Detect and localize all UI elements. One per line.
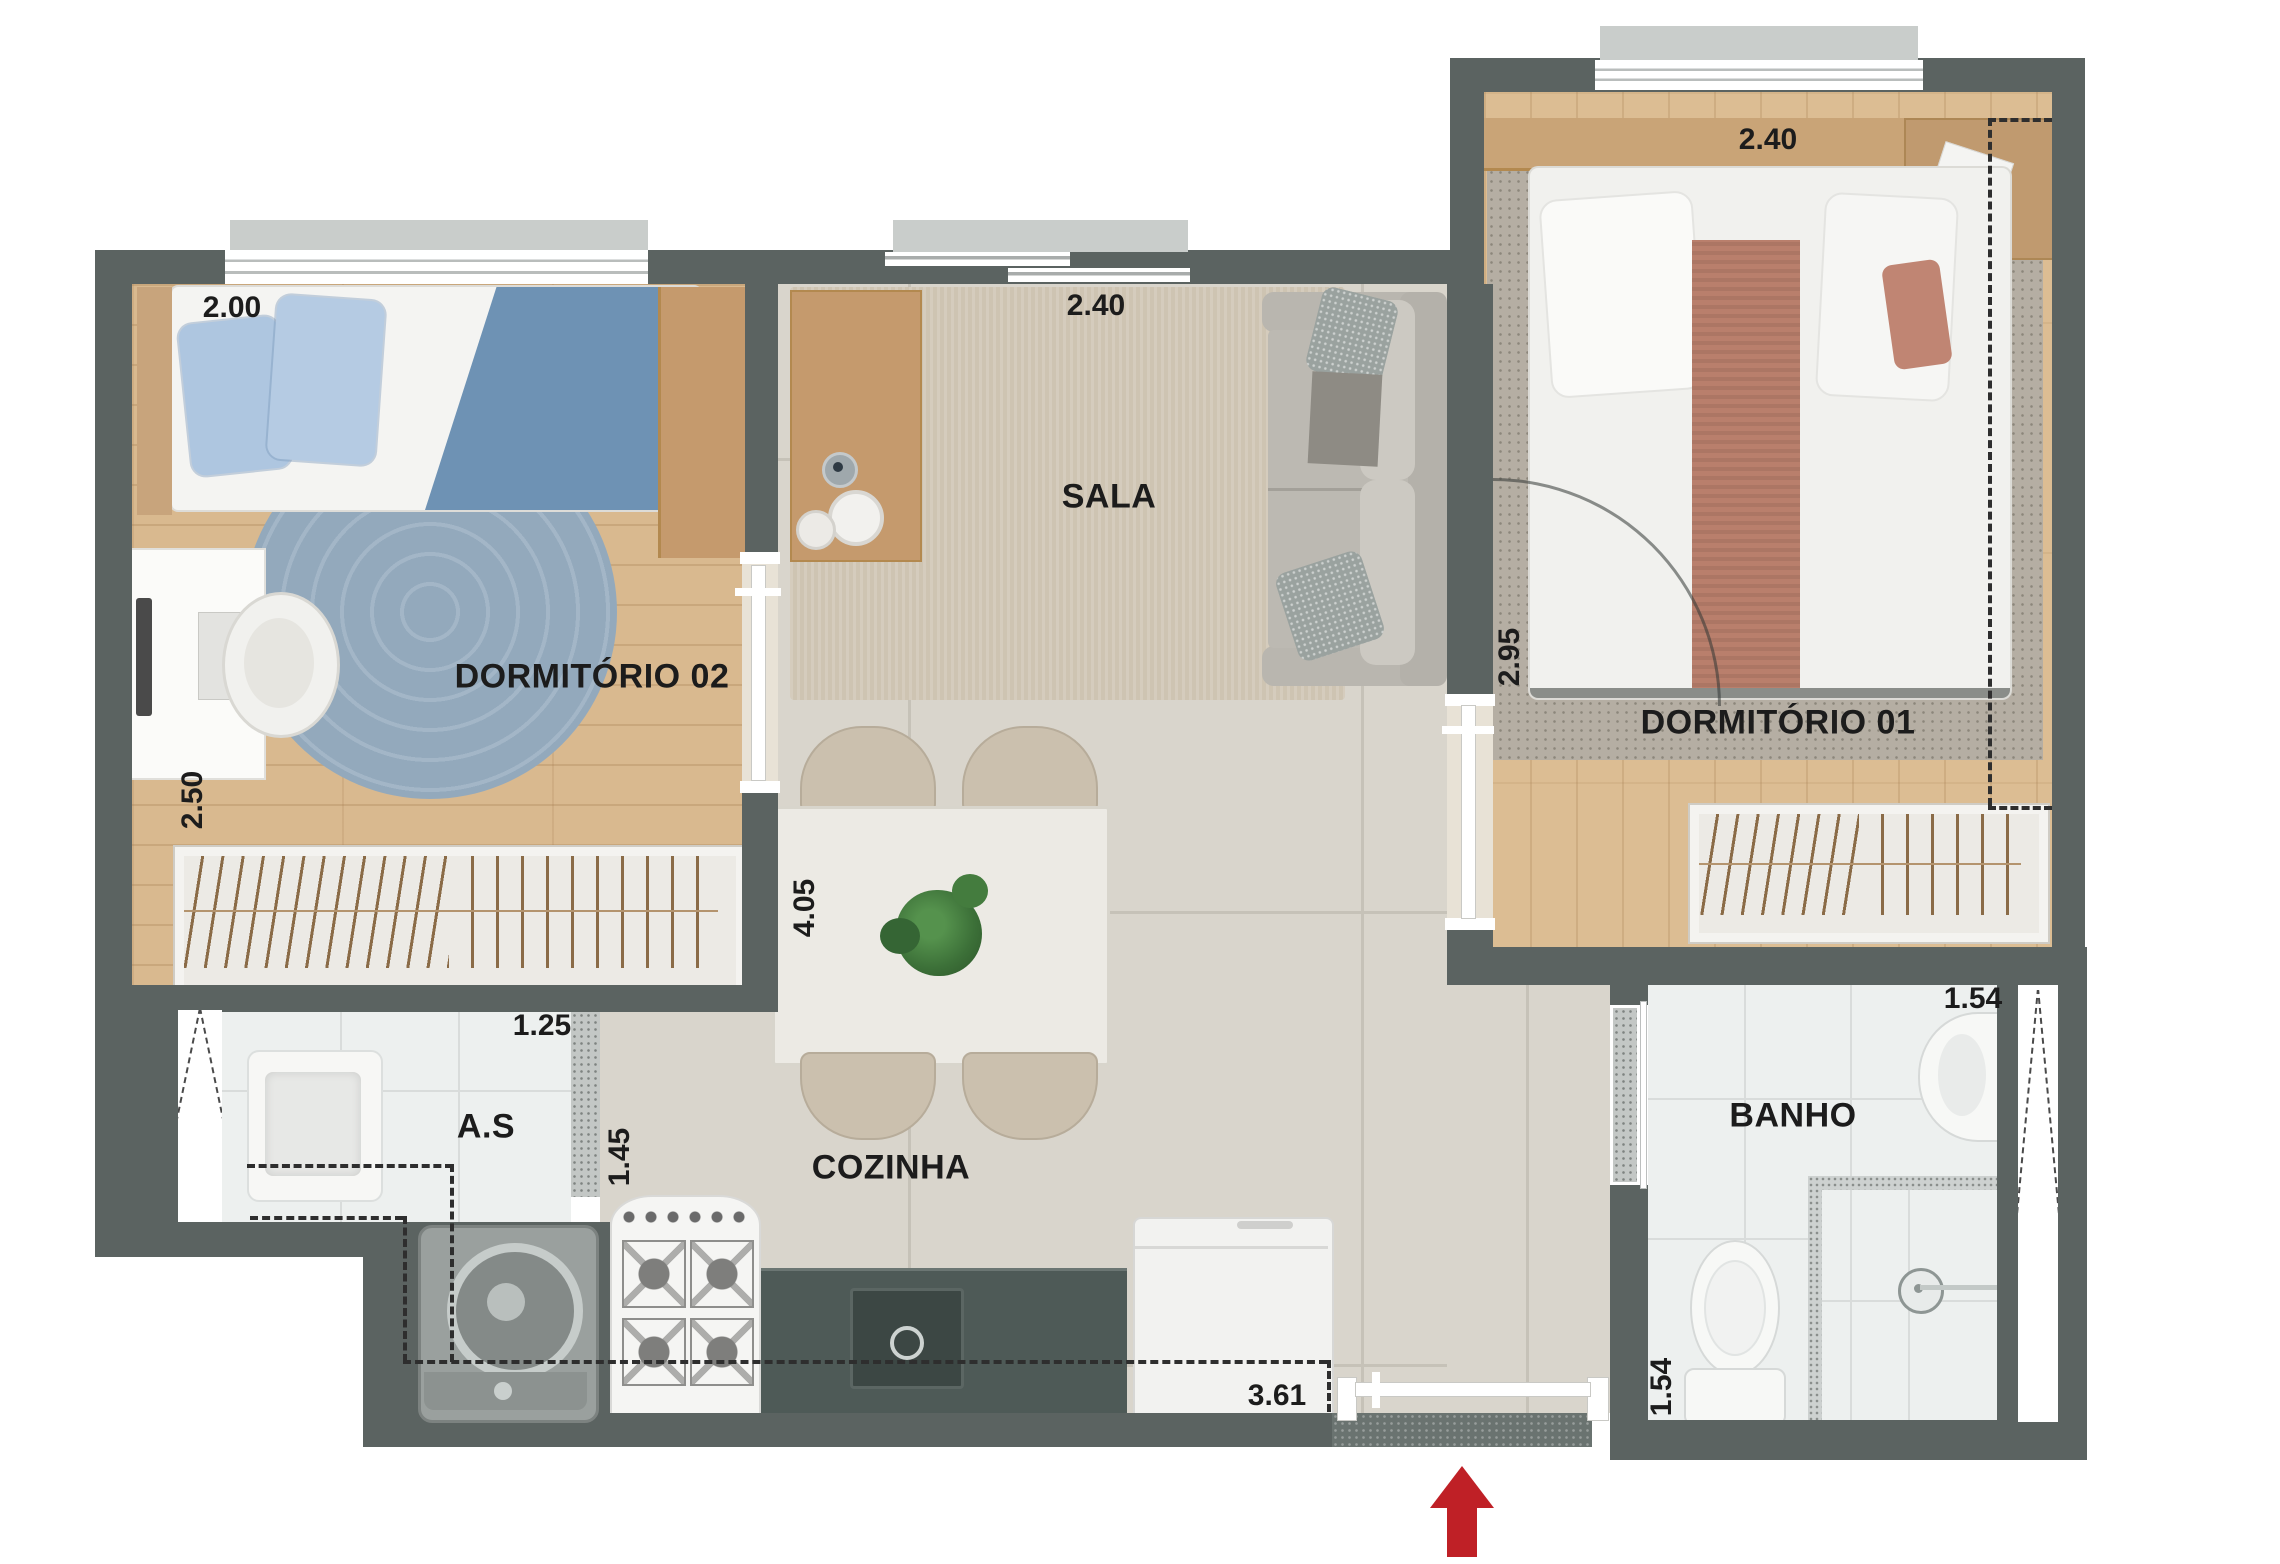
pillow [1538, 190, 1706, 399]
balcony-slab [1600, 26, 1918, 60]
stove-burner [622, 1318, 686, 1386]
wall-dorm01-right [2052, 58, 2085, 977]
bed-runner-terracotta [1692, 240, 1800, 696]
dashed-line [1988, 118, 1992, 806]
pillow [266, 294, 385, 465]
dashed-line [1327, 1360, 1331, 1412]
x-mark [2018, 990, 2039, 1422]
stove-burner [690, 1240, 754, 1308]
dorm01-wardrobe [1690, 805, 2048, 942]
banho-door-track [1641, 1002, 1646, 1188]
dorm02-window [225, 250, 648, 284]
stove-burner [622, 1240, 686, 1308]
grout-line [1850, 985, 1852, 1425]
desk-chair-seat [244, 618, 314, 708]
dorm02-wardrobe [175, 847, 745, 995]
wall-step-bottom-left [95, 1222, 363, 1257]
fridge-door-split [1135, 1246, 1328, 1249]
dorm01-headboard-shelf [1484, 118, 1904, 171]
grout-line [1526, 985, 1529, 1413]
wall-banho-bottom [1610, 1420, 2087, 1460]
wall-as-top [95, 985, 778, 1012]
shower-border [1808, 1176, 1998, 1190]
balcony-slab [893, 220, 1188, 252]
wall-shaft-outer [2058, 985, 2087, 1425]
floor-plan: DORMITÓRIO 02 2.00 2.50 SALA 2.40 DORMIT… [0, 0, 2280, 1564]
dim-dorm01-left: 2.95 [1493, 628, 1527, 686]
faucet [890, 1326, 924, 1360]
banho-shaft-window [2018, 990, 2058, 1422]
sofa-throw [1308, 371, 1383, 467]
dish [828, 490, 884, 546]
toilet-tank [1684, 1368, 1786, 1426]
room-label-dorm02: DORMITÓRIO 02 [455, 658, 730, 697]
entrance-arrow-icon [1430, 1466, 1494, 1508]
wardrobe-hangers [449, 856, 718, 968]
dim-as-right: 1.45 [603, 1128, 637, 1186]
dim-cozinha-left: 4.05 [788, 879, 822, 937]
stove-knobs [618, 1208, 750, 1226]
door-frame [1588, 1378, 1608, 1420]
dashed-line [1988, 118, 2052, 122]
as-shaft-window [178, 1010, 222, 1222]
room-label-sala: SALA [1062, 478, 1157, 517]
x-mark [178, 1010, 201, 1222]
as-kitchen-divider [571, 1012, 600, 1197]
dashed-line [247, 1164, 453, 1168]
room-label-cozinha: COZINHA [812, 1149, 970, 1188]
door-frame [1445, 694, 1495, 706]
wall-banho-right-inner [1997, 985, 2018, 1425]
bathroom-sink-basin [1938, 1034, 1986, 1116]
wardrobe-hangers [184, 856, 449, 968]
dim-banho-left: 1.54 [1645, 1358, 1679, 1416]
dorm01-window [1595, 60, 1923, 90]
dim-sala-top: 2.40 [1067, 289, 1125, 323]
sala-window-rail [1008, 268, 1190, 282]
room-label-as: A.S [457, 1108, 515, 1147]
sala-window-rail [885, 252, 1070, 266]
dashed-line [403, 1216, 407, 1362]
toilet-bowl-inner [1704, 1260, 1766, 1356]
wall-hall-dorm01-upper [1447, 284, 1493, 704]
room-label-banho: BANHO [1729, 1097, 1856, 1136]
shower-border [1808, 1176, 1822, 1422]
door-frame [1338, 1378, 1356, 1420]
wardrobe-rail [1699, 863, 2021, 865]
dorm02-door-leaf [752, 566, 765, 780]
x-mark [2037, 990, 2058, 1422]
dorm01-door-leaf [1462, 706, 1475, 918]
fridge-handle [1237, 1221, 1293, 1229]
door-hinge [1442, 726, 1494, 734]
door-hinge [735, 588, 781, 596]
wall-dorm02-divider-lower [742, 785, 778, 1012]
wall-dorm01-left-upper [1450, 58, 1484, 284]
dashed-line [1988, 806, 2052, 810]
dashed-line [250, 1216, 403, 1220]
wall-left [95, 250, 132, 1012]
wall-banho-top [1447, 947, 2087, 985]
room-label-dorm01: DORMITÓRIO 01 [1641, 704, 1916, 743]
monitor [136, 598, 152, 716]
dashed-line [403, 1360, 1327, 1364]
entrance-porch [1332, 1413, 1592, 1447]
wardrobe-rail [184, 910, 718, 912]
door-frame [740, 552, 780, 564]
entrance-arrow-shaft [1447, 1505, 1477, 1557]
balcony-slab [230, 220, 648, 252]
vase-dot [833, 462, 843, 472]
stove-burner [690, 1318, 754, 1386]
laundry-tub-basin [265, 1072, 361, 1176]
dim-dorm02-left: 2.50 [176, 771, 210, 829]
shower-arm [1920, 1285, 1997, 1290]
dorm02-closet [658, 287, 745, 558]
wall-as-left [95, 985, 178, 1257]
plant-leaf [880, 918, 920, 954]
dim-as-top: 1.25 [513, 1009, 571, 1043]
bed-headboard [137, 287, 172, 515]
wall-banho-left-lower [1610, 1185, 1648, 1460]
washer-knob [494, 1382, 512, 1400]
door-hinge [1372, 1372, 1380, 1408]
dashed-line [450, 1164, 454, 1362]
door-frame [740, 781, 780, 793]
wall-dorm02-sala-divider [745, 284, 778, 560]
plant-leaf [952, 874, 988, 908]
dish-small [796, 510, 836, 550]
banho-sliding-door [1613, 1008, 1637, 1182]
dim-dorm02-top: 2.00 [203, 291, 261, 325]
entrance-door-leaf [1356, 1383, 1590, 1396]
washer-drum-center [487, 1283, 525, 1321]
door-frame [1445, 918, 1495, 930]
wall-bottom [610, 1413, 1332, 1447]
dim-banho-top: 1.54 [1944, 982, 2002, 1016]
x-mark [199, 1010, 222, 1222]
sofa [1257, 290, 1447, 688]
dim-cozinha-bottom: 3.61 [1248, 1379, 1306, 1413]
dim-dorm01-top: 2.40 [1739, 123, 1797, 157]
